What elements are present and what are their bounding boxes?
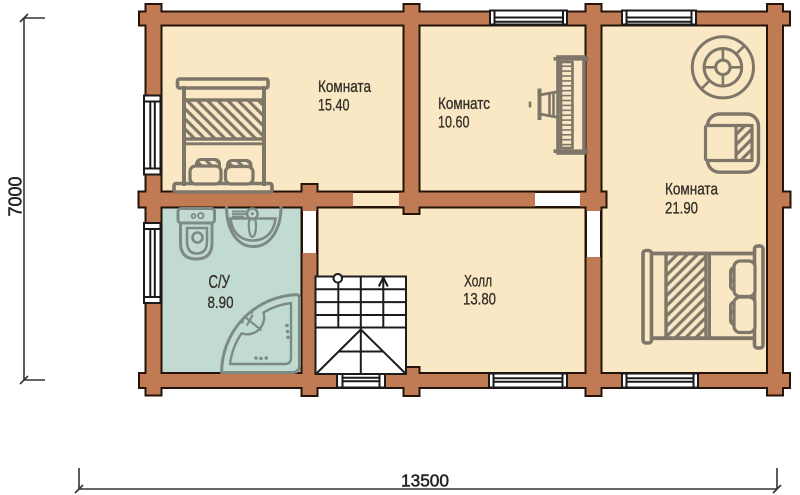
svg-text:С/У: С/У (209, 272, 231, 292)
svg-text:13500: 13500 (401, 471, 449, 491)
svg-text:21.90: 21.90 (665, 199, 698, 218)
svg-text:15.40: 15.40 (318, 96, 350, 115)
svg-text:13.80: 13.80 (463, 290, 496, 309)
svg-text:7000: 7000 (6, 177, 26, 217)
svg-text:10.60: 10.60 (438, 113, 470, 132)
svg-text:Комнатс: Комнатс (438, 94, 490, 113)
svg-text:Холл: Холл (464, 272, 492, 291)
svg-text:Комната: Комната (318, 77, 372, 96)
svg-text:Комната: Комната (665, 180, 719, 199)
svg-text:8.90: 8.90 (208, 293, 234, 312)
